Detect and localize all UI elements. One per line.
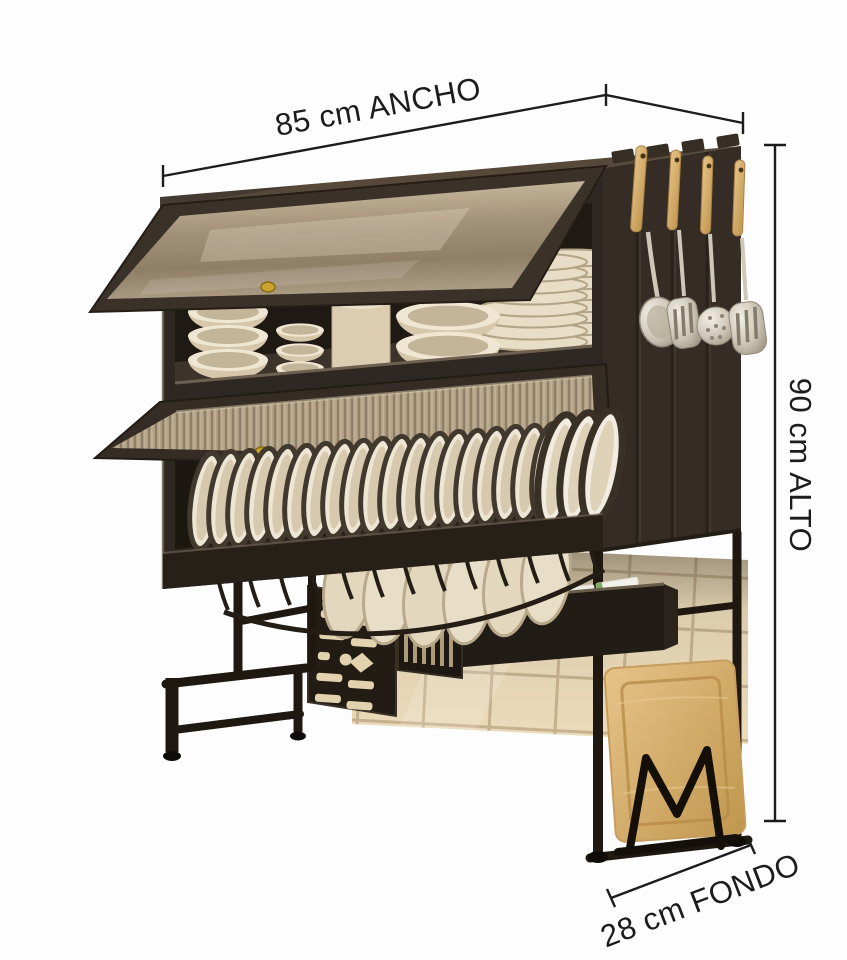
leg-foot bbox=[588, 851, 608, 863]
tray-end-cap bbox=[664, 584, 678, 650]
height-dimension-label: 90 cm ALTO bbox=[783, 378, 818, 552]
bowl-stack bbox=[188, 301, 268, 380]
depth-dimension-label: 28 cm FONDO bbox=[596, 846, 805, 954]
door-knob[interactable] bbox=[261, 282, 275, 292]
leg-foot bbox=[290, 732, 306, 741]
width-dimension-label: 85 cm ANCHO bbox=[272, 70, 484, 142]
product-dimension-diagram: 85 cm ANCHO 90 cm ALTO 28 cm FONDO bbox=[0, 0, 847, 960]
frosted-flip-up-door bbox=[90, 166, 606, 312]
height-dimension: 90 cm ALTO bbox=[764, 145, 818, 821]
cutting-board-group bbox=[604, 660, 746, 852]
leg-foot bbox=[163, 751, 181, 761]
